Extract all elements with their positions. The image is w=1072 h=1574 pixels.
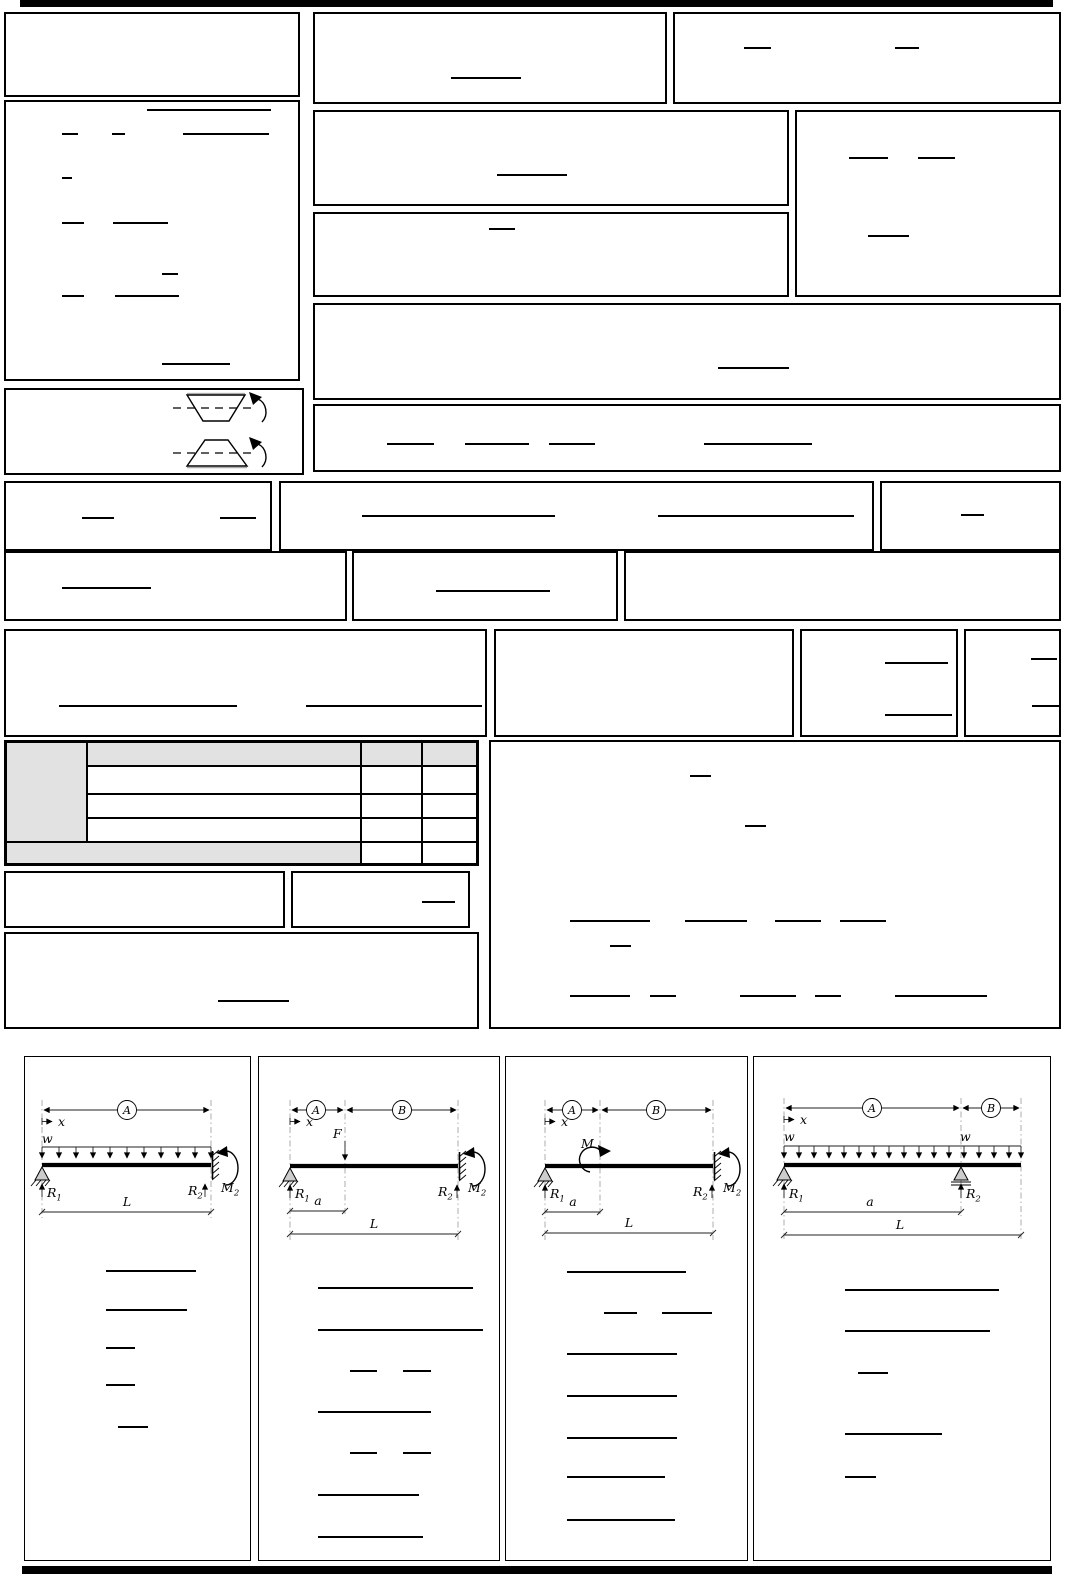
dimension-line-length: L <box>542 1215 716 1236</box>
formula-rule <box>662 1312 712 1314</box>
fixed-support-right <box>212 1150 219 1180</box>
table-footer-cell-gray <box>6 842 361 864</box>
x-origin-marker: x <box>545 1114 568 1129</box>
formula-rule <box>549 443 595 445</box>
formula-rule <box>350 1370 377 1372</box>
box-row3-right <box>880 481 1061 551</box>
bottom-rule <box>22 1566 1052 1574</box>
table-cell <box>361 794 422 818</box>
formula-rule <box>704 443 812 445</box>
moment-arrow-m2: M2 <box>216 1146 239 1199</box>
formula-rule <box>610 945 631 947</box>
formula-rule <box>59 705 237 707</box>
formula-rule <box>147 109 271 111</box>
formula-rule <box>436 590 550 592</box>
reference-sheet-page: A x w <box>0 0 1072 1574</box>
span-label-a: A <box>867 1102 876 1115</box>
pin-support-left <box>773 1167 792 1186</box>
label-r1: R1 <box>46 1185 62 1204</box>
table-header-cell <box>422 742 477 766</box>
dimension-line-span-b: B <box>602 1101 711 1120</box>
formula-rule <box>718 367 789 369</box>
label-a: a <box>866 1194 873 1209</box>
dimension-line-span-b: B <box>347 1101 456 1120</box>
trapezoid-section-figure-top <box>173 392 266 422</box>
formula-rule <box>403 1370 431 1372</box>
formula-rule <box>604 1312 637 1314</box>
formula-rule <box>918 157 955 159</box>
rotation-arrow-icon <box>249 392 266 422</box>
label-r1: R1 <box>294 1186 310 1205</box>
dimension-line-span-a: A <box>547 1101 598 1120</box>
x-label: x <box>561 1114 568 1129</box>
formula-rule <box>489 228 515 230</box>
fixed-support-right <box>714 1151 721 1181</box>
load-label-w: w <box>42 1131 53 1146</box>
beam-diagram-3: A B x M <box>505 1056 748 1256</box>
span-label-b: B <box>986 1102 995 1115</box>
box-wide-2 <box>313 404 1061 472</box>
formula-rule <box>422 901 455 903</box>
formula-rule <box>318 1287 473 1289</box>
formula-rule <box>840 920 886 922</box>
box-right-tall <box>795 110 1061 297</box>
data-table <box>4 740 479 866</box>
x-label: x <box>58 1114 65 1129</box>
span-label-b: B <box>397 1104 406 1117</box>
formula-rule <box>567 1271 686 1273</box>
label-r2: R2 <box>187 1183 203 1202</box>
box-wide-1 <box>313 303 1061 400</box>
beam-diagram-4: A B x w w <box>753 1056 1051 1256</box>
formula-rule <box>62 295 84 297</box>
formula-rule <box>815 995 841 997</box>
formula-rule <box>306 705 482 707</box>
formula-rule <box>858 1372 888 1374</box>
reaction-arrow-r2: R2 <box>692 1184 712 1203</box>
label-m2: M2 <box>722 1180 741 1199</box>
distributed-load-arrows <box>42 1147 211 1158</box>
box-row5-far-right <box>964 629 1061 737</box>
box-row4-middle <box>352 551 618 621</box>
formula-rule <box>115 295 179 297</box>
label-length: L <box>122 1194 131 1209</box>
reaction-arrow-r1: R1 <box>42 1184 62 1204</box>
formula-rule <box>570 995 630 997</box>
x-label: x <box>306 1114 313 1129</box>
table-cell <box>422 842 477 864</box>
dimension-line-span-b: B <box>963 1099 1019 1118</box>
reaction-arrow-r1: R1 <box>290 1185 310 1205</box>
formula-rule <box>658 515 854 517</box>
dimension-line-a: a <box>781 1194 964 1215</box>
box-top-middle <box>313 12 667 104</box>
beam-diagram-2: A B x F <box>258 1056 500 1256</box>
box-left-column <box>4 100 300 381</box>
formula-rule <box>387 443 434 445</box>
rotation-arrow-icon <box>249 437 266 467</box>
reaction-arrow-r1: R1 <box>784 1184 804 1205</box>
x-origin-marker: x <box>42 1114 65 1129</box>
box-row5-left <box>4 629 487 737</box>
box-below-table-left <box>4 871 285 928</box>
box-row3-left <box>4 481 272 551</box>
x-origin-marker: x <box>784 1112 807 1127</box>
formula-rule <box>318 1494 419 1496</box>
formula-rule <box>82 517 114 519</box>
dimension-line-span-a: A <box>786 1099 959 1118</box>
formula-rule <box>106 1309 187 1311</box>
load-label-w: w <box>784 1129 795 1144</box>
formula-rule <box>685 920 747 922</box>
formula-rule <box>162 273 178 275</box>
formula-rule <box>62 177 72 179</box>
label-r1: R1 <box>788 1186 804 1205</box>
formula-rule <box>567 1519 675 1521</box>
table-cell-rowspan-gray <box>6 742 87 842</box>
label-a: a <box>314 1193 321 1208</box>
formula-rule <box>118 1426 148 1428</box>
box-row5-right <box>800 629 958 737</box>
load-label-w: w <box>960 1129 971 1144</box>
formula-rule <box>740 995 796 997</box>
dimension-line-span-a: A <box>292 1101 343 1120</box>
formula-rule <box>362 515 555 517</box>
label-r2: R2 <box>692 1184 708 1203</box>
dimension-line-span-a: A <box>44 1101 209 1120</box>
table-cell <box>87 766 361 794</box>
dimension-line-length: L <box>781 1217 1024 1238</box>
formula-rule <box>106 1347 135 1349</box>
pin-support-left <box>279 1168 298 1187</box>
formula-rule <box>845 1476 876 1478</box>
formula-rule <box>106 1384 135 1386</box>
table-cell <box>87 794 361 818</box>
pin-support-left <box>534 1168 553 1187</box>
formula-rule <box>567 1437 677 1439</box>
formula-rule <box>775 920 821 922</box>
formula-rule <box>690 775 711 777</box>
formula-rule <box>403 1452 431 1454</box>
formula-rule <box>106 1270 196 1272</box>
table-cell <box>361 818 422 842</box>
label-length: L <box>895 1217 904 1232</box>
formula-rule <box>567 1353 677 1355</box>
formula-rule <box>570 920 650 922</box>
formula-rule <box>567 1395 677 1397</box>
label-length: L <box>624 1215 633 1230</box>
table-cell <box>87 818 361 842</box>
table-header-cell <box>361 742 422 766</box>
box-middle-1 <box>313 110 789 206</box>
formula-rule <box>497 174 567 176</box>
formula-rule <box>350 1452 377 1454</box>
span-label-a: A <box>567 1104 576 1117</box>
formula-rule <box>961 514 984 516</box>
trapezoid-figures <box>4 388 304 475</box>
formula-rule <box>745 825 766 827</box>
label-length: L <box>369 1216 378 1231</box>
formula-rule <box>465 443 529 445</box>
span-label-b: B <box>651 1104 660 1117</box>
trapezoid-section-figure-bottom <box>173 437 266 468</box>
box-row4-right <box>624 551 1061 621</box>
load-label-m: M <box>580 1136 595 1151</box>
label-r2: R2 <box>437 1184 453 1203</box>
formula-rule <box>318 1536 423 1538</box>
top-rule <box>20 0 1053 7</box>
formula-rule <box>318 1329 483 1331</box>
table-cell <box>361 842 422 864</box>
moment-arrow-m2: M2 <box>718 1147 741 1199</box>
reaction-arrow-r1: R1 <box>545 1185 565 1205</box>
x-origin-marker: x <box>290 1114 313 1129</box>
formula-rule <box>895 995 987 997</box>
box-bottom-left <box>4 932 479 1029</box>
formula-rule <box>849 157 888 159</box>
formula-rule <box>744 47 771 49</box>
box-row4-left <box>4 551 347 621</box>
formula-rule <box>845 1330 990 1332</box>
box-top-right <box>673 12 1061 104</box>
formula-rule <box>220 517 256 519</box>
formula-rule <box>1031 658 1057 660</box>
fixed-support-right <box>459 1151 466 1181</box>
formula-rule <box>113 222 168 224</box>
formula-rule <box>112 133 125 135</box>
reaction-arrow-r2: R2 <box>437 1184 457 1203</box>
box-top-left <box>4 12 300 97</box>
point-load-f: F <box>332 1126 345 1160</box>
formula-rule <box>183 133 269 135</box>
reaction-arrow-r2: R2 <box>961 1184 981 1205</box>
formula-rule <box>62 222 84 224</box>
dimension-line-length: L <box>287 1216 461 1237</box>
table-cell <box>422 794 477 818</box>
formula-rule <box>885 714 952 716</box>
formula-rule <box>318 1411 431 1413</box>
formula-rule <box>845 1433 942 1435</box>
roller-support-mid <box>951 1167 971 1185</box>
formula-rule <box>162 363 230 365</box>
moment-arrow-m2: M2 <box>463 1147 486 1199</box>
table-cell <box>361 766 422 794</box>
formula-rule <box>895 47 919 49</box>
load-label-f: F <box>332 1126 343 1141</box>
table-header-cell <box>87 742 361 766</box>
formula-rule <box>218 1000 289 1002</box>
formula-rule <box>650 995 676 997</box>
label-m2: M2 <box>467 1180 486 1199</box>
box-below-table-right <box>291 871 470 928</box>
table-cell <box>422 766 477 794</box>
formula-rule <box>451 77 521 79</box>
label-r1: R1 <box>549 1186 565 1205</box>
box-row5-middle <box>494 629 794 737</box>
table-cell <box>422 818 477 842</box>
formula-rule <box>845 1289 999 1291</box>
formula-rule <box>885 662 948 664</box>
box-middle-2 <box>313 212 789 297</box>
formula-rule <box>868 235 909 237</box>
formula-rule <box>567 1476 665 1478</box>
label-m2: M2 <box>220 1180 239 1199</box>
distributed-load-arrows <box>784 1146 1021 1158</box>
box-bottom-right-large <box>489 740 1061 1029</box>
pin-support-left <box>31 1167 50 1186</box>
x-label: x <box>800 1112 807 1127</box>
formula-rule <box>1032 705 1060 707</box>
label-r2: R2 <box>965 1186 981 1205</box>
beam-diagram-1: A x w <box>24 1056 251 1256</box>
formula-rule <box>62 133 78 135</box>
span-label-a: A <box>122 1104 131 1117</box>
label-a: a <box>569 1194 576 1209</box>
formula-rule <box>62 587 151 589</box>
reaction-arrow-r2: R2 <box>187 1183 205 1202</box>
